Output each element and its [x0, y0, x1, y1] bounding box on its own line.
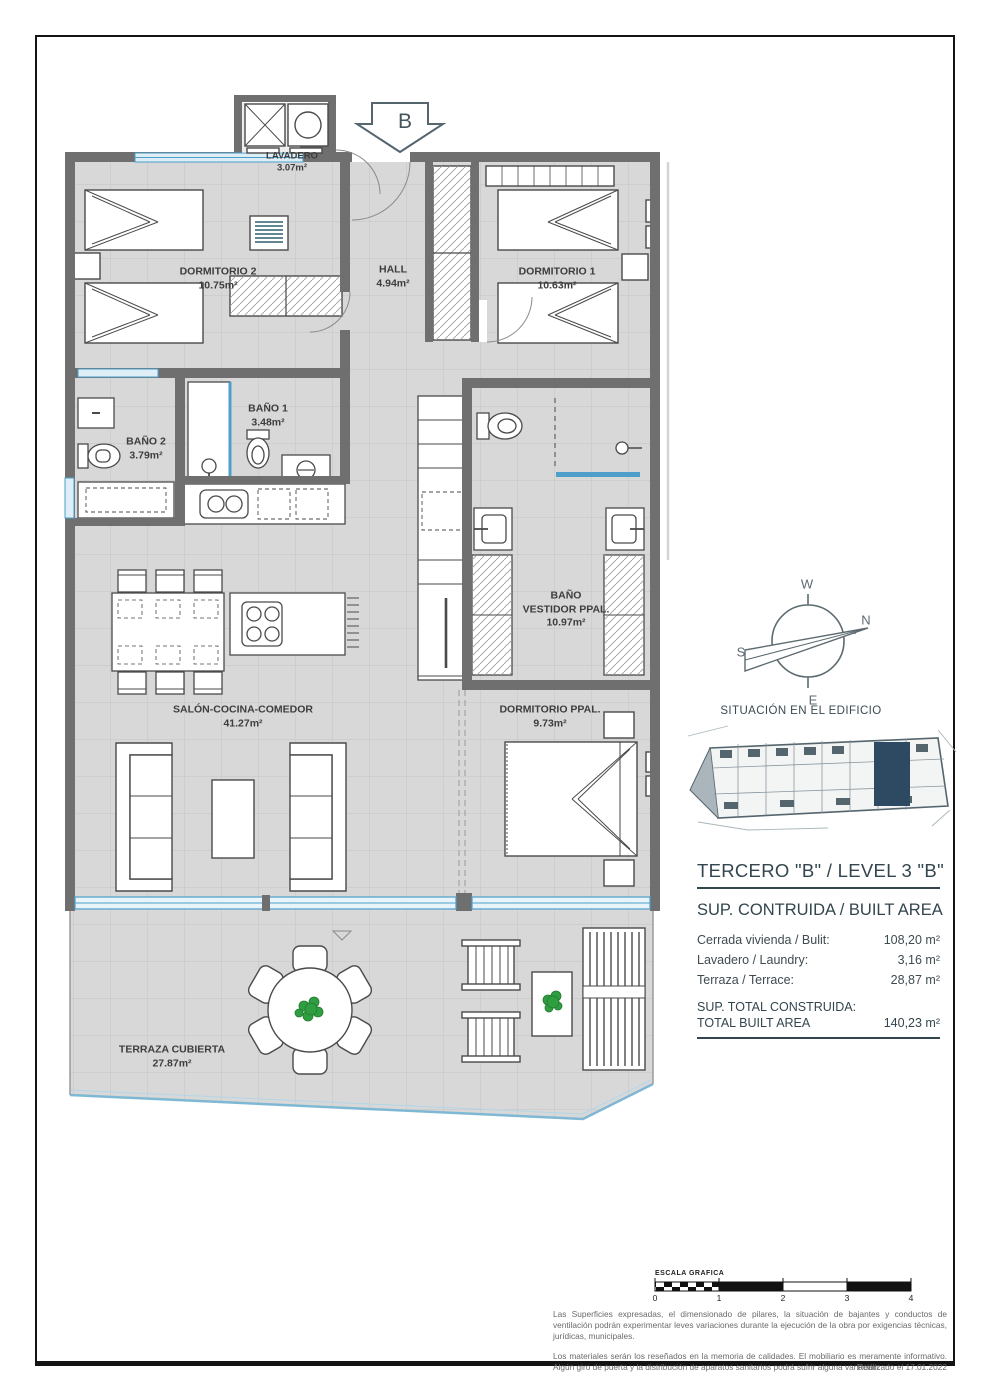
area-row: Cerrada vivienda / Bulit: 108,20 m² [697, 930, 940, 950]
room-label-bano1: BAÑO 1 3.48m² [248, 402, 288, 429]
room-name: HALL [376, 263, 409, 277]
area-row-label: Cerrada vivienda / Bulit: [697, 930, 830, 950]
scale-tick: 4 [905, 1293, 917, 1303]
area-row-label: Terraza / Terrace: [697, 970, 794, 990]
room-label-lavadero: LAVADERO 3.07m² [266, 151, 318, 176]
info-panel: TERCERO "B" / LEVEL 3 "B" SUP. CONTRUIDA… [697, 860, 940, 1039]
total-label-1: SUP. TOTAL CONSTRUIDA: [697, 1000, 940, 1014]
pergola-slats [583, 928, 645, 1070]
room-label-terraza: TERRAZA CUBIERTA 27.87m² [119, 1043, 225, 1070]
room-label-salon: SALÓN-COCINA-COMEDOR 41.27m² [173, 703, 313, 730]
compass-w-label: W [801, 577, 813, 592]
shower-head-icon [616, 442, 628, 454]
compass-s-label: S [737, 645, 746, 660]
total-value: 140,23 m² [884, 1014, 940, 1033]
siteplan-map [688, 726, 956, 830]
level-title: TERCERO "B" / LEVEL 3 "B" [697, 860, 940, 889]
area-row-value: 28,87 m² [891, 970, 940, 990]
toilet-icon [78, 444, 88, 468]
highlighted-unit [874, 742, 910, 806]
room-name: TERRAZA CUBIERTA [119, 1043, 225, 1057]
total-label-2: TOTAL BUILT AREA [697, 1014, 810, 1033]
room-label-dormitorio1: DORMITORIO 1 10.63m² [519, 265, 596, 292]
room-name: DORMITORIO PPAL. [499, 703, 600, 717]
total-area: SUP. TOTAL CONSTRUIDA: TOTAL BUILT AREA … [697, 1000, 940, 1039]
room-area: 4.94m² [376, 277, 409, 291]
room-name: BAÑO [523, 590, 610, 604]
room-label-bano2: BAÑO 2 3.79m² [126, 435, 166, 462]
lounge-chair-icon [462, 940, 520, 990]
toilet-icon [477, 413, 489, 439]
section-arrow-label: B [398, 110, 412, 134]
coffee-table [212, 780, 254, 858]
room-area: 10.97m² [523, 617, 610, 631]
room-name: BAÑO 2 [126, 435, 166, 449]
room-area: 9.73m² [499, 717, 600, 731]
room-name: DORMITORIO 2 [180, 265, 257, 279]
kitchen-tall-units [418, 396, 468, 680]
disclaimer-text: Las Superficies expresadas, el dimension… [553, 1309, 947, 1373]
compass-icon [745, 594, 868, 688]
scale-tick: 1 [713, 1293, 725, 1303]
floorplan-sheet: B LAVADERO 3.07m² DORMITORIO 2 10.75m² H… [0, 0, 989, 1400]
room-label-bano-vestidor: BAÑO VESTIDOR PPAL. 10.97m² [523, 590, 610, 631]
area-rows: Cerrada vivienda / Bulit: 108,20 m² Lava… [697, 930, 940, 990]
room-name: DORMITORIO 1 [519, 265, 596, 279]
siteplan-title: SITUACIÓN EN EL EDIFICIO [688, 705, 914, 717]
scale-tick: 0 [649, 1293, 661, 1303]
room-label-dormitorio2: DORMITORIO 2 10.75m² [180, 265, 257, 292]
room-area: 3.48m² [248, 416, 288, 430]
floorplan-drawing [0, 0, 989, 1400]
area-row-value: 3,16 m² [898, 950, 940, 970]
room-area: 10.63m² [519, 279, 596, 293]
room-name: LAVADERO [266, 151, 318, 163]
room-name: SALÓN-COCINA-COMEDOR [173, 703, 313, 717]
scale-bar-title: ESCALA GRAFICA [655, 1270, 724, 1277]
area-row: Terraza / Terrace: 28,87 m² [697, 970, 940, 990]
room-area: 10.75m² [180, 279, 257, 293]
built-area-subtitle: SUP. CONTRUIDA / BUILT AREA [697, 901, 940, 920]
room-area: 41.27m² [173, 717, 313, 731]
shower-screen [556, 472, 640, 477]
room-area: 3.07m² [266, 163, 318, 175]
scale-tick: 2 [777, 1293, 789, 1303]
room-area: 3.79m² [126, 449, 166, 463]
area-row: Lavadero / Laundry: 3,16 m² [697, 950, 940, 970]
disclaimer-paragraph-1: Las Superficies expresadas, el dimension… [553, 1309, 947, 1343]
room-name: BAÑO 1 [248, 402, 288, 416]
area-row-label: Lavadero / Laundry: [697, 950, 808, 970]
room-name-2: VESTIDOR PPAL. [523, 603, 610, 617]
scale-tick: 3 [841, 1293, 853, 1303]
lounge-chair-icon [462, 1012, 520, 1062]
room-area: 27.87m² [119, 1057, 225, 1071]
area-row-value: 108,20 m² [884, 930, 940, 950]
compass-n-label: N [861, 613, 870, 628]
room-label-dormitorio-ppal: DORMITORIO PPAL. 9.73m² [499, 703, 600, 730]
scale-bar [655, 1278, 911, 1291]
room-label-hall: HALL 4.94m² [376, 263, 409, 290]
